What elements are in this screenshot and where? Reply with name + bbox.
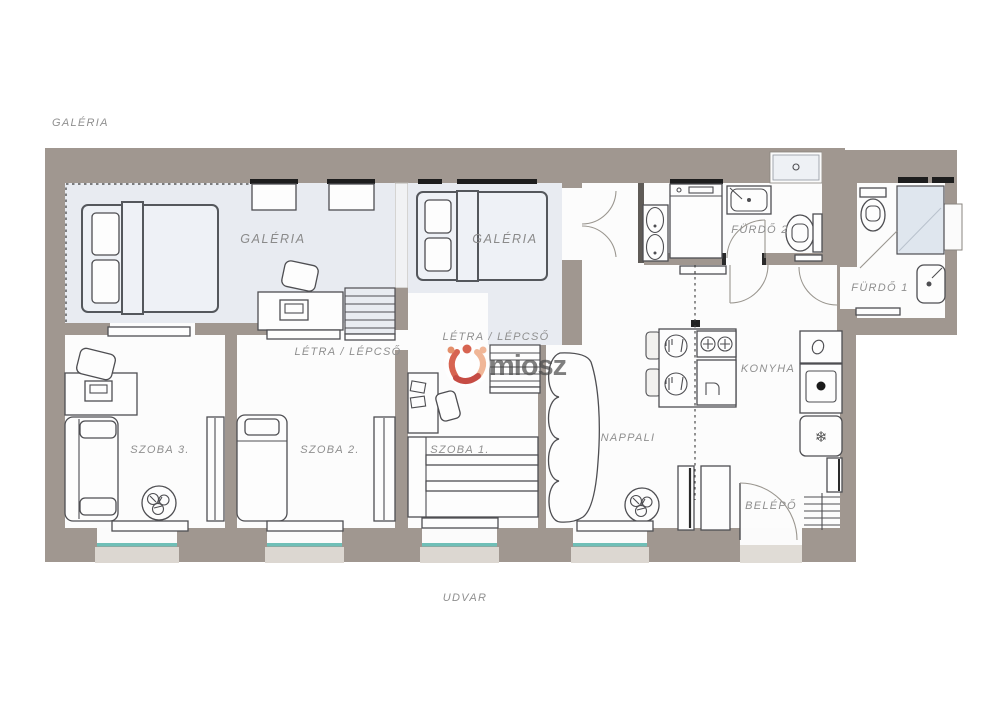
shower-tray [773,155,819,180]
bath-mat [856,308,900,315]
radiator [577,521,653,531]
window-szoba3 [95,528,179,563]
gallery-window-frame [252,184,296,210]
window-bar [932,177,954,183]
label-furdo1: FÜRDŐ 1 [851,280,908,294]
washing-machine [670,184,722,258]
label-galeria-center: GALÉRIA [472,231,537,246]
wall-center-hall-lower [562,260,582,345]
wall-center-hall-upper [562,148,582,190]
window-bar [250,179,298,184]
label-galeria-outside: GALÉRIA [52,116,109,129]
burner-dot [817,382,826,391]
window-bar [457,179,537,184]
wall-furdo1-bottom [845,318,957,335]
label-galeria-left: GALÉRIA [240,231,305,246]
laptop [280,300,308,320]
shower-cabin [897,186,944,254]
bunk-rail [426,481,538,491]
label-szoba1: SZOBA 1. [430,444,490,456]
wall-szoba3-szoba2 [225,335,237,528]
bunk-rail [426,455,538,465]
window-bar [418,179,442,184]
drain [747,198,751,202]
drain [654,225,657,228]
pillow [92,260,119,303]
stair-base [490,387,540,393]
toilet-tank [860,188,886,197]
threshold [680,266,726,274]
window-bar [670,179,723,184]
threshold [795,255,822,261]
toilet-tank [813,214,822,252]
cooktop [697,331,736,357]
bed-headboard [122,202,143,314]
label-furdo2: FÜRDŐ 2 [731,222,788,236]
plant-icon [625,488,659,522]
window-bar [898,177,928,183]
partition-between-galleries [395,183,408,288]
label-belepo: BELÉPŐ [745,498,797,512]
drain [654,252,657,255]
window-nappali [571,528,649,563]
wardrobe [701,466,730,530]
label-konyha: KONYHA [741,363,795,375]
wardrobe [678,466,694,530]
counter-sink [800,331,842,363]
label-udvar: UDVAR [443,592,487,604]
window-bar [327,179,375,184]
pillow [425,200,451,233]
radiator [267,521,343,531]
floor-plan-page: ❄ GALÉRIA GALÉRIA LÉTRA / LÉPCSŐ LÉTRA /… [0,0,1000,723]
double-door-opening [562,188,582,260]
door-threshold [108,327,190,336]
label-letra-center: LÉTRA / LÉPCSŐ [442,329,549,343]
burner-icon [718,337,732,351]
label-nappali: NAPPALI [601,432,656,444]
wall-gallery-szoba3-a [65,323,110,335]
sofa-armrest [80,498,116,515]
stairs-left [345,288,395,340]
watermark-text: miosz [489,350,567,382]
label-szoba3: SZOBA 3. [130,444,190,456]
window-szoba1 [420,528,499,563]
burner-icon [701,337,715,351]
snowflake-icon: ❄ [815,429,828,446]
wall-left-center [395,288,408,560]
pillow [92,213,119,255]
plant-icon [142,486,176,520]
radiator [422,518,498,528]
pillow [245,419,279,435]
window-szoba2 [265,528,344,563]
pillow [425,238,451,271]
desk [408,373,438,433]
gallery-window-frame [329,184,374,210]
floor-plan: ❄ GALÉRIA GALÉRIA LÉTRA / LÉPCSŐ LÉTRA /… [0,0,1000,723]
radiator [112,521,188,531]
entry-door-opening [740,528,802,563]
drain [927,282,932,287]
toilet-bowl [786,215,814,251]
sofa-armrest [80,421,116,438]
stair-base [345,334,395,340]
laptop [85,381,112,401]
label-letra-left: LÉTRA / LÉPCSŐ [294,344,401,358]
wall-furdo2-furdo1 [822,148,845,265]
island-sink-unit [697,360,736,405]
shelf [267,330,340,339]
label-szoba2: SZOBA 2. [300,444,360,456]
furdo1-side-niche [944,204,962,250]
toilet-bowl [861,199,885,231]
